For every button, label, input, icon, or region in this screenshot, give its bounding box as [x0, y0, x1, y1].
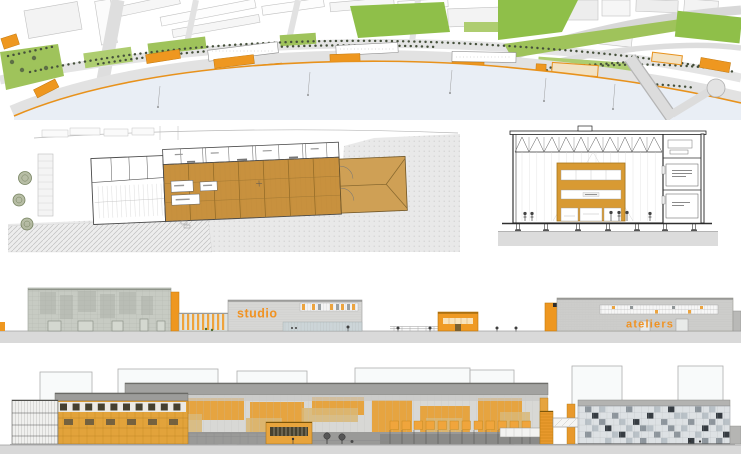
long-hall-building — [125, 383, 548, 444]
striped-stair-building — [12, 400, 58, 444]
side-annex — [662, 134, 704, 223]
orange-pavilion-small — [266, 422, 312, 444]
plan-trees — [13, 172, 33, 231]
edge-orange-fragment — [0, 322, 5, 331]
studio-building: studio — [228, 300, 362, 331]
ateliers-signage: ateliers — [626, 319, 674, 331]
ground-band — [0, 331, 741, 343]
orange-tower-right — [545, 303, 557, 331]
glass-hall-building — [28, 288, 171, 331]
site-plan-panel — [0, 0, 741, 120]
orange-pavilion — [438, 312, 478, 331]
mosaic-facade-building — [578, 400, 741, 444]
floor-plan-panel — [8, 120, 468, 254]
office-wing — [91, 156, 166, 225]
quay-elevation-panel: studio — [0, 274, 741, 344]
walkway-link — [500, 428, 540, 437]
orange-grid-building — [48, 393, 188, 444]
inner-orange-volume — [557, 163, 625, 221]
architecture-presentation-sheet: studio — [0, 0, 741, 454]
footings — [502, 224, 712, 232]
studio-signage: studio — [237, 307, 278, 321]
ground-band — [498, 232, 718, 247]
roof-slab — [510, 131, 706, 135]
orange-stair-tower — [540, 411, 553, 444]
ground-band — [0, 444, 741, 454]
street-elevation-panel — [0, 356, 741, 454]
cross-section-panel — [498, 118, 718, 252]
planter-strip — [38, 154, 53, 216]
bridge-link — [553, 418, 581, 427]
link-building — [179, 313, 228, 331]
orange-tower-left — [171, 292, 179, 331]
roof-monitor — [578, 126, 592, 131]
ateliers-building: ateliers — [557, 298, 741, 331]
